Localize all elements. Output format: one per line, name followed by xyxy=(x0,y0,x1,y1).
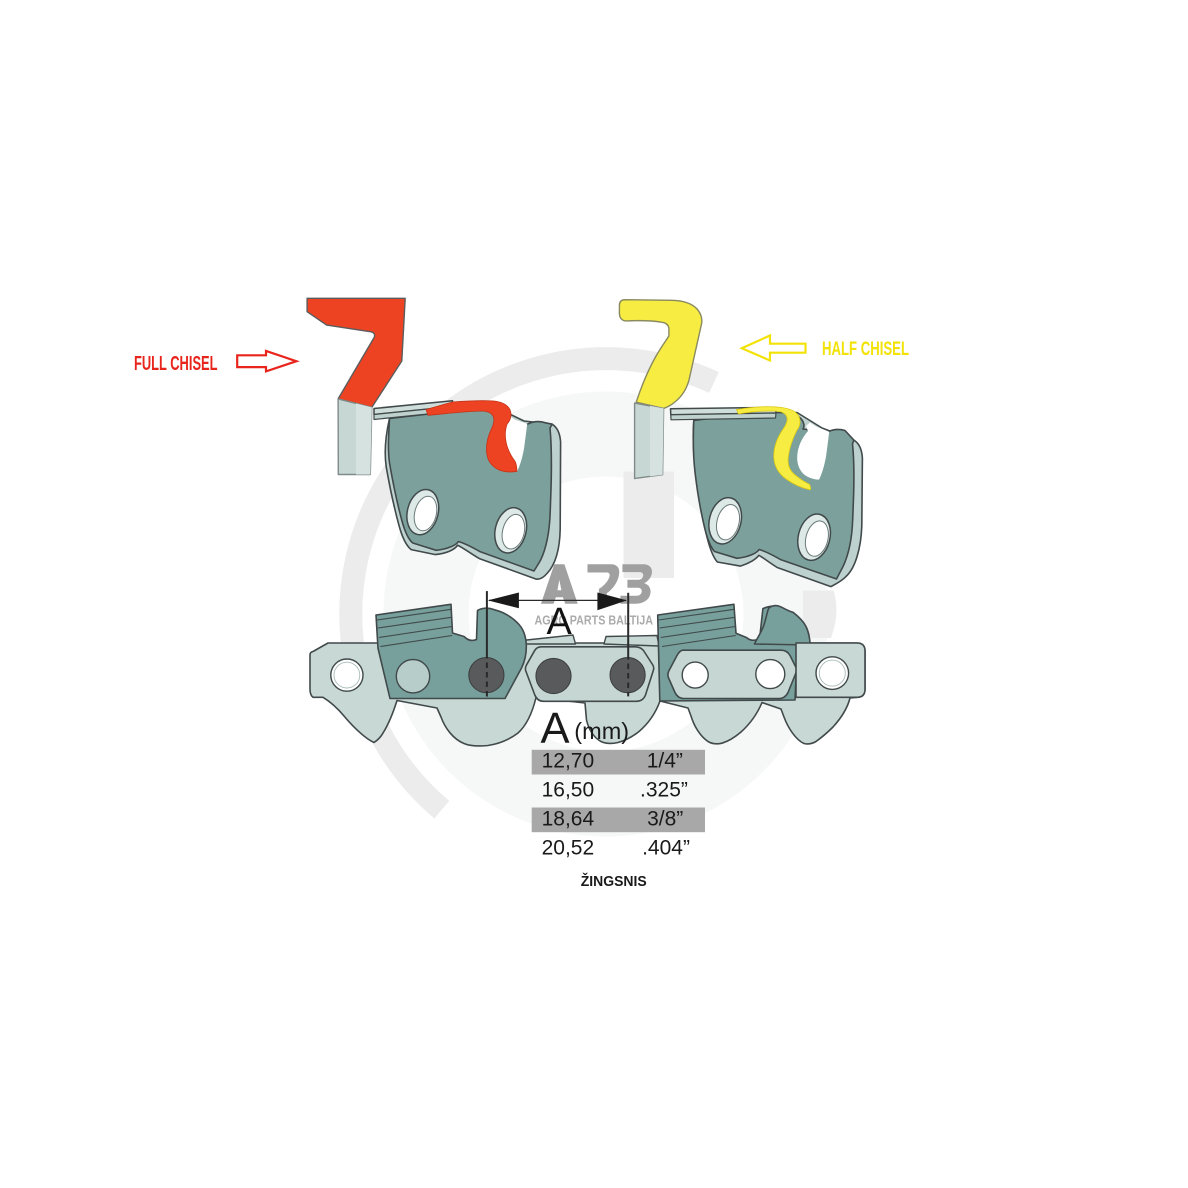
svg-text:A: A xyxy=(541,705,570,753)
svg-text:16,50: 16,50 xyxy=(542,779,595,802)
svg-text:FULL CHISEL: FULL CHISEL xyxy=(134,353,218,375)
svg-text:20,52: 20,52 xyxy=(542,837,595,860)
svg-text:A: A xyxy=(547,601,573,643)
svg-text:1/4”: 1/4” xyxy=(647,750,683,773)
svg-text:3/8”: 3/8” xyxy=(647,808,683,831)
svg-text:18,64: 18,64 xyxy=(542,808,595,831)
svg-text:(mm): (mm) xyxy=(574,718,629,744)
svg-text:.404”: .404” xyxy=(642,837,690,860)
svg-text:.325”: .325” xyxy=(640,779,688,802)
svg-text:ŽINGSNIS: ŽINGSNIS xyxy=(581,872,647,890)
svg-text:HALF CHISEL: HALF CHISEL xyxy=(822,339,909,360)
svg-text:12,70: 12,70 xyxy=(542,750,595,773)
